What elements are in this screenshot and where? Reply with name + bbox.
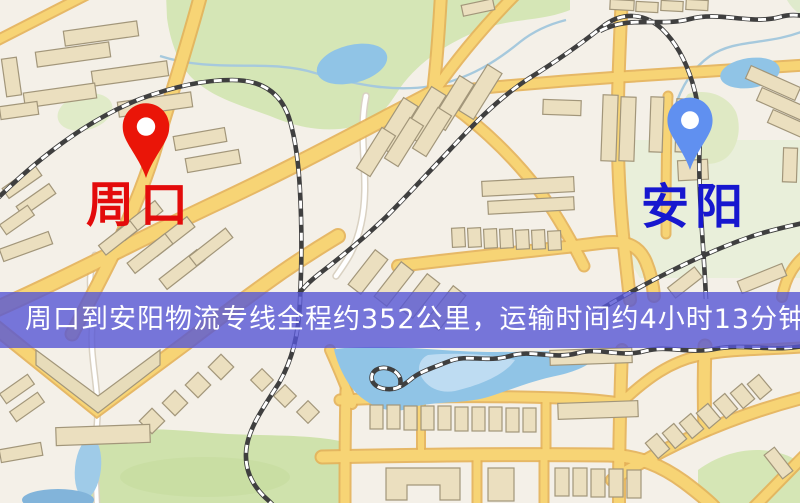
blue-pin-hole [681,111,699,129]
red-pin-hole [137,117,155,135]
origin-city-label: 周口 [86,177,194,233]
route-info-text: 周口到安阳物流专线全程约352公里，运输时间约4小时13分钟. [25,304,800,335]
route-info-banner: 周口到安阳物流专线全程约352公里，运输时间约4小时13分钟. [0,292,800,348]
destination-city-label: 安阳 [641,179,749,235]
map-base-layers [0,0,800,503]
map-canvas: 周口 安阳 [0,0,800,503]
map-image: 周口 安阳 周口到安阳物流专线全程约352公里，运输时间约4小时13分钟. [0,0,800,503]
